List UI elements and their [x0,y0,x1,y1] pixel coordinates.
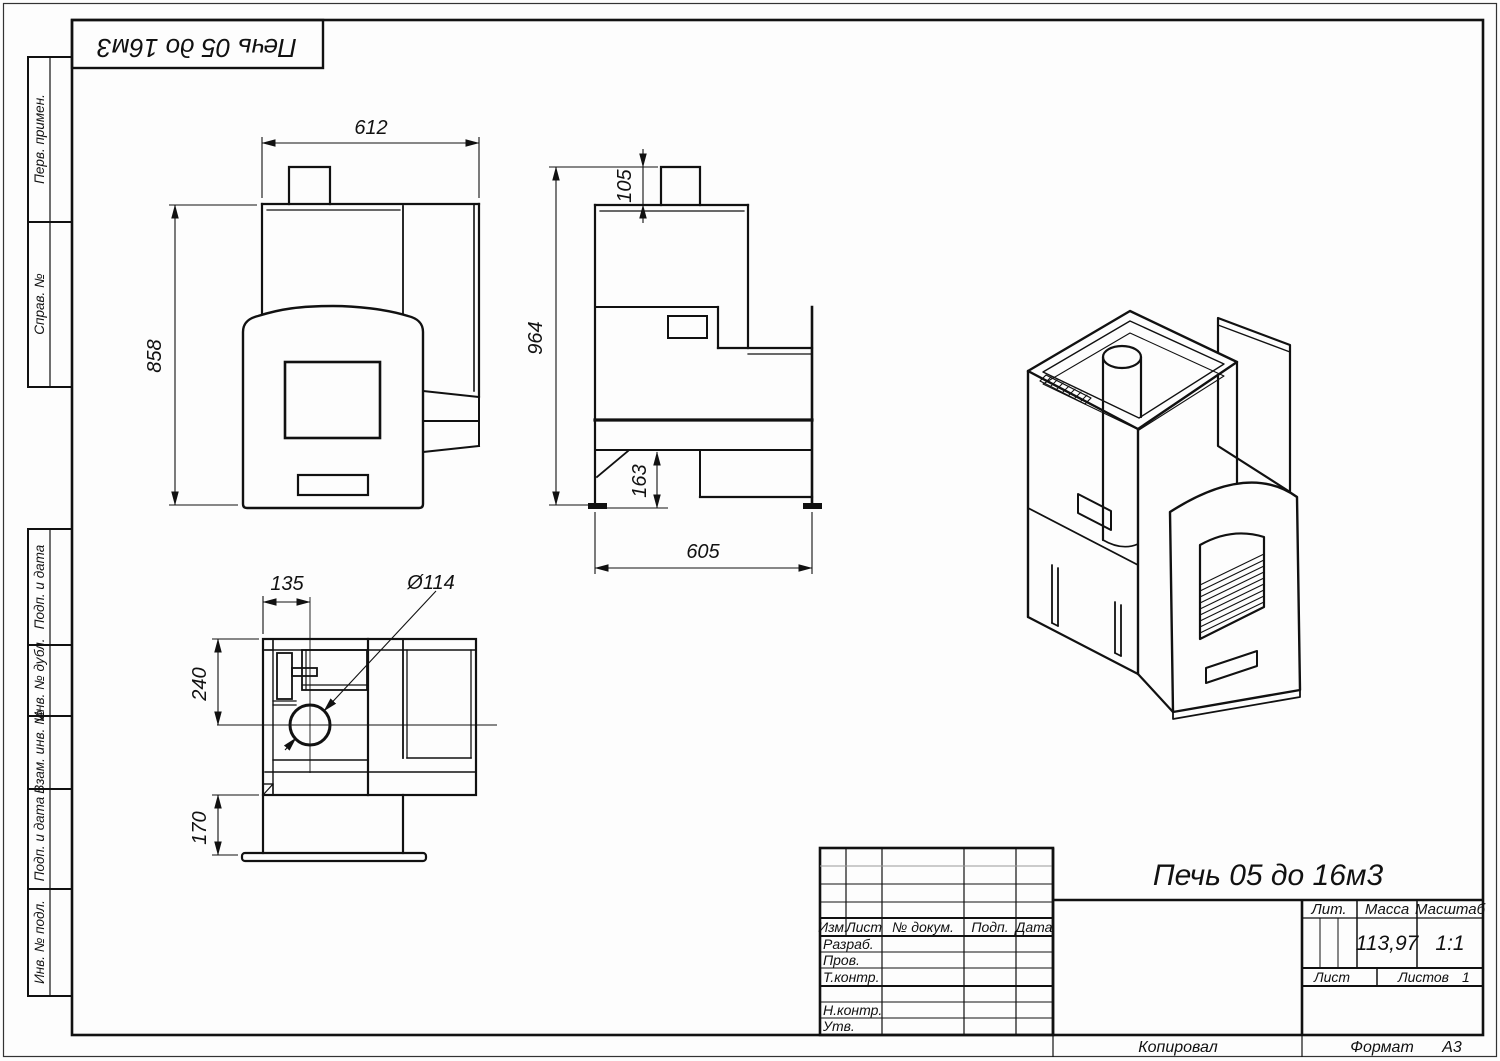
tb-col-list: Лист [845,919,882,935]
tb-row-tkontr: Т.контр. [823,969,879,985]
dim-side-depth: 605 [686,541,720,563]
tb-lit-label: Лит. [1310,901,1346,918]
side-view-dims [549,149,812,574]
margin-labels: Перв. примен. Справ. № Подп. и дата Инв.… [32,94,47,984]
dim-plan-offset: 135 [270,573,304,595]
dim-plan-diameter: Ø114 [406,572,454,594]
plan-view [242,639,476,861]
margin-label-podp2: Подп. и дата [32,796,47,881]
margin-label-dubl: Инв. № дубл. [32,638,47,721]
tb-massa-value: 113,97 [1356,932,1420,955]
tb-row-nkontr: Н.контр. [823,1002,882,1018]
dim-front-width: 612 [354,117,387,139]
margin-label-vzam: Взам. инв. № [32,710,47,794]
footer-format-value: А3 [1441,1039,1462,1056]
tb-masshtab-label: Масштаб [1415,901,1486,918]
dim-plan-upper: 240 [189,667,211,701]
side-view [588,167,822,509]
tb-row-razrab: Разраб. [823,936,874,952]
corner-stamp: Печь 05 до 16м3 [72,20,323,68]
dim-plan-lower: 170 [189,811,211,844]
tb-row-utv: Утв. [822,1018,855,1034]
margin-label-podl: Инв. № подл. [32,900,47,984]
tb-col-izm: Изм. [818,919,848,935]
dim-side-chimney: 105 [614,168,636,202]
title-block-text: Изм. Лист № докум. Подп. Дата Разраб. Пр… [818,859,1486,1034]
margin-label-podp1: Подп. и дата [32,544,47,629]
tb-masshtab-value: 1:1 [1435,932,1464,955]
dim-front-height: 858 [144,339,166,372]
dim-side-base: 163 [629,464,651,497]
footer-kopiroval: Копировал [1138,1039,1218,1056]
drawing-sheet: Перв. примен. Справ. № Подп. и дата Инв.… [0,0,1500,1061]
footer-format-label: Формат [1350,1039,1414,1056]
front-view [243,167,479,508]
tb-col-dokum: № докум. [892,919,954,935]
tb-massa-label: Масса [1365,901,1409,918]
tb-listov-value: 1 [1462,969,1470,985]
drawing-canvas: Перв. примен. Справ. № Подп. и дата Инв.… [0,0,1500,1061]
tb-col-data: Дата [1014,919,1053,935]
plan-view-dims [212,591,497,855]
tb-col-podp: Подп. [971,919,1008,935]
tb-row-prov: Пров. [823,952,860,968]
dim-side-height: 964 [525,321,547,354]
margin-label-sprav: Справ. № [32,273,47,335]
corner-stamp-title: Печь 05 до 16м3 [97,33,297,63]
isometric-view [1028,311,1300,719]
tb-title: Печь 05 до 16м3 [1153,859,1384,892]
footer: Копировал Формат А3 [1138,1039,1462,1056]
margin-label-perv: Перв. примен. [32,94,47,184]
tb-list-label: Лист [1313,969,1350,985]
tb-listov-label: Листов [1397,969,1449,985]
